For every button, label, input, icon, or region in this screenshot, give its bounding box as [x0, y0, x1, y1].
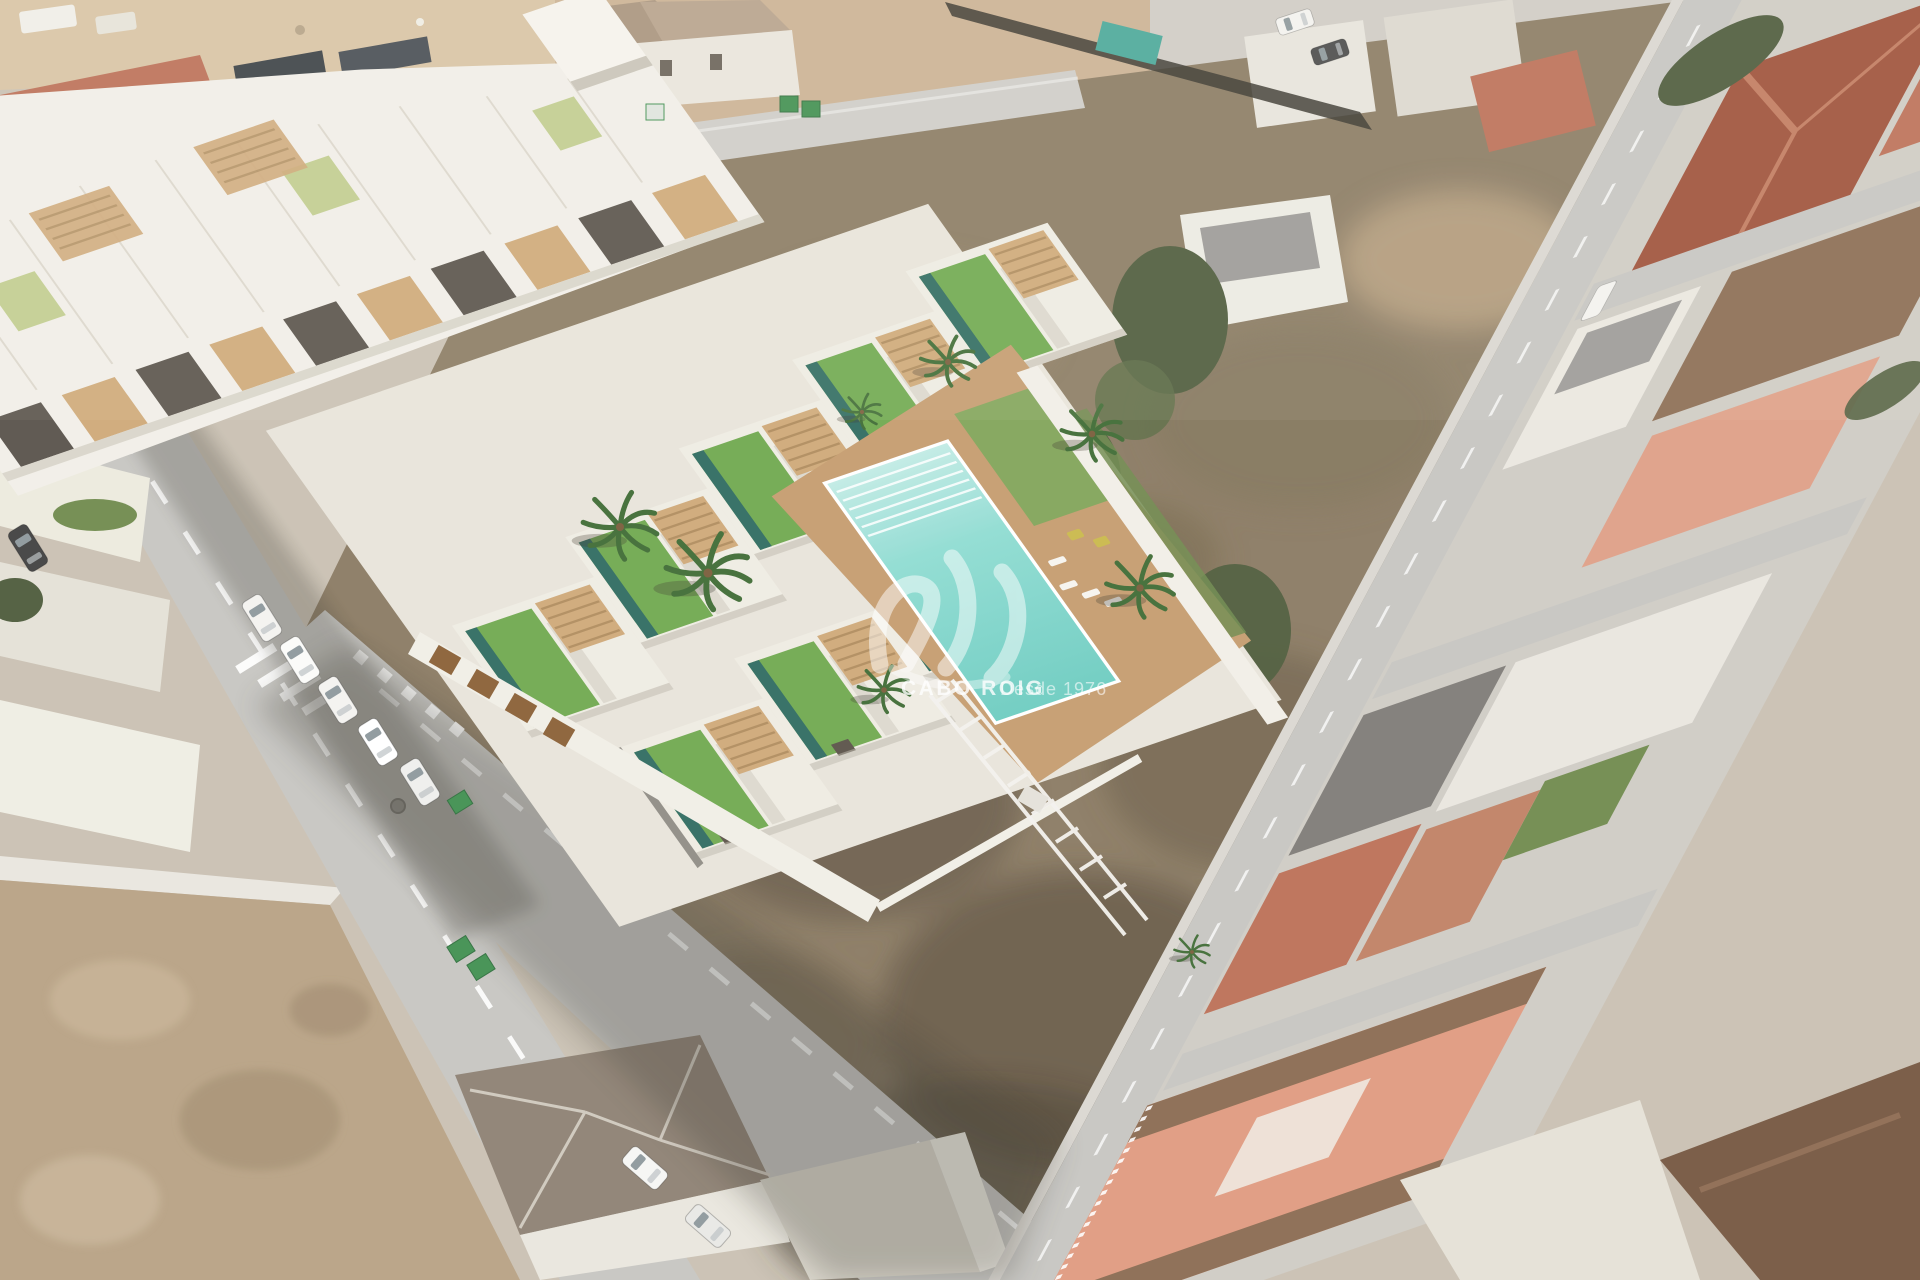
watermark-tagline: Desde 1976	[1000, 679, 1107, 699]
aerial-render-photo: CABO ROIG Desde 1976	[0, 0, 1920, 1280]
aerial-scene: CABO ROIG Desde 1976	[0, 0, 1920, 1280]
warm-light	[0, 0, 1920, 420]
